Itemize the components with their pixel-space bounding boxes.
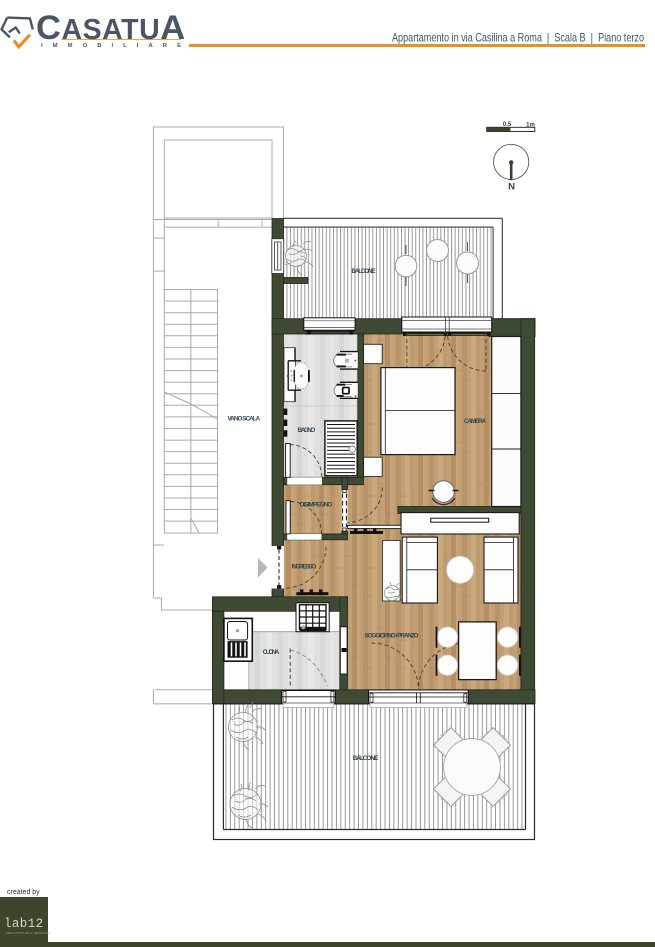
svg-text:CUCINA: CUCINA [263, 649, 280, 656]
svg-text:0.5: 0.5 [503, 122, 512, 128]
svg-text:BAGNO: BAGNO [298, 427, 316, 434]
svg-text:DISIMPEGNO: DISIMPEGNO [300, 502, 333, 509]
svg-text:INGRESSO: INGRESSO [292, 564, 317, 571]
svg-text:BALCONE: BALCONE [352, 268, 376, 275]
svg-text:N: N [508, 182, 515, 193]
svg-text:BALCONE: BALCONE [353, 755, 379, 762]
svg-text:SOGGIORNO / PRANZO: SOGGIORNO / PRANZO [365, 632, 419, 639]
svg-text:CAMERA: CAMERA [464, 418, 487, 425]
svg-text:VANO SCALA: VANO SCALA [227, 415, 260, 422]
svg-text:1m: 1m [526, 123, 535, 129]
